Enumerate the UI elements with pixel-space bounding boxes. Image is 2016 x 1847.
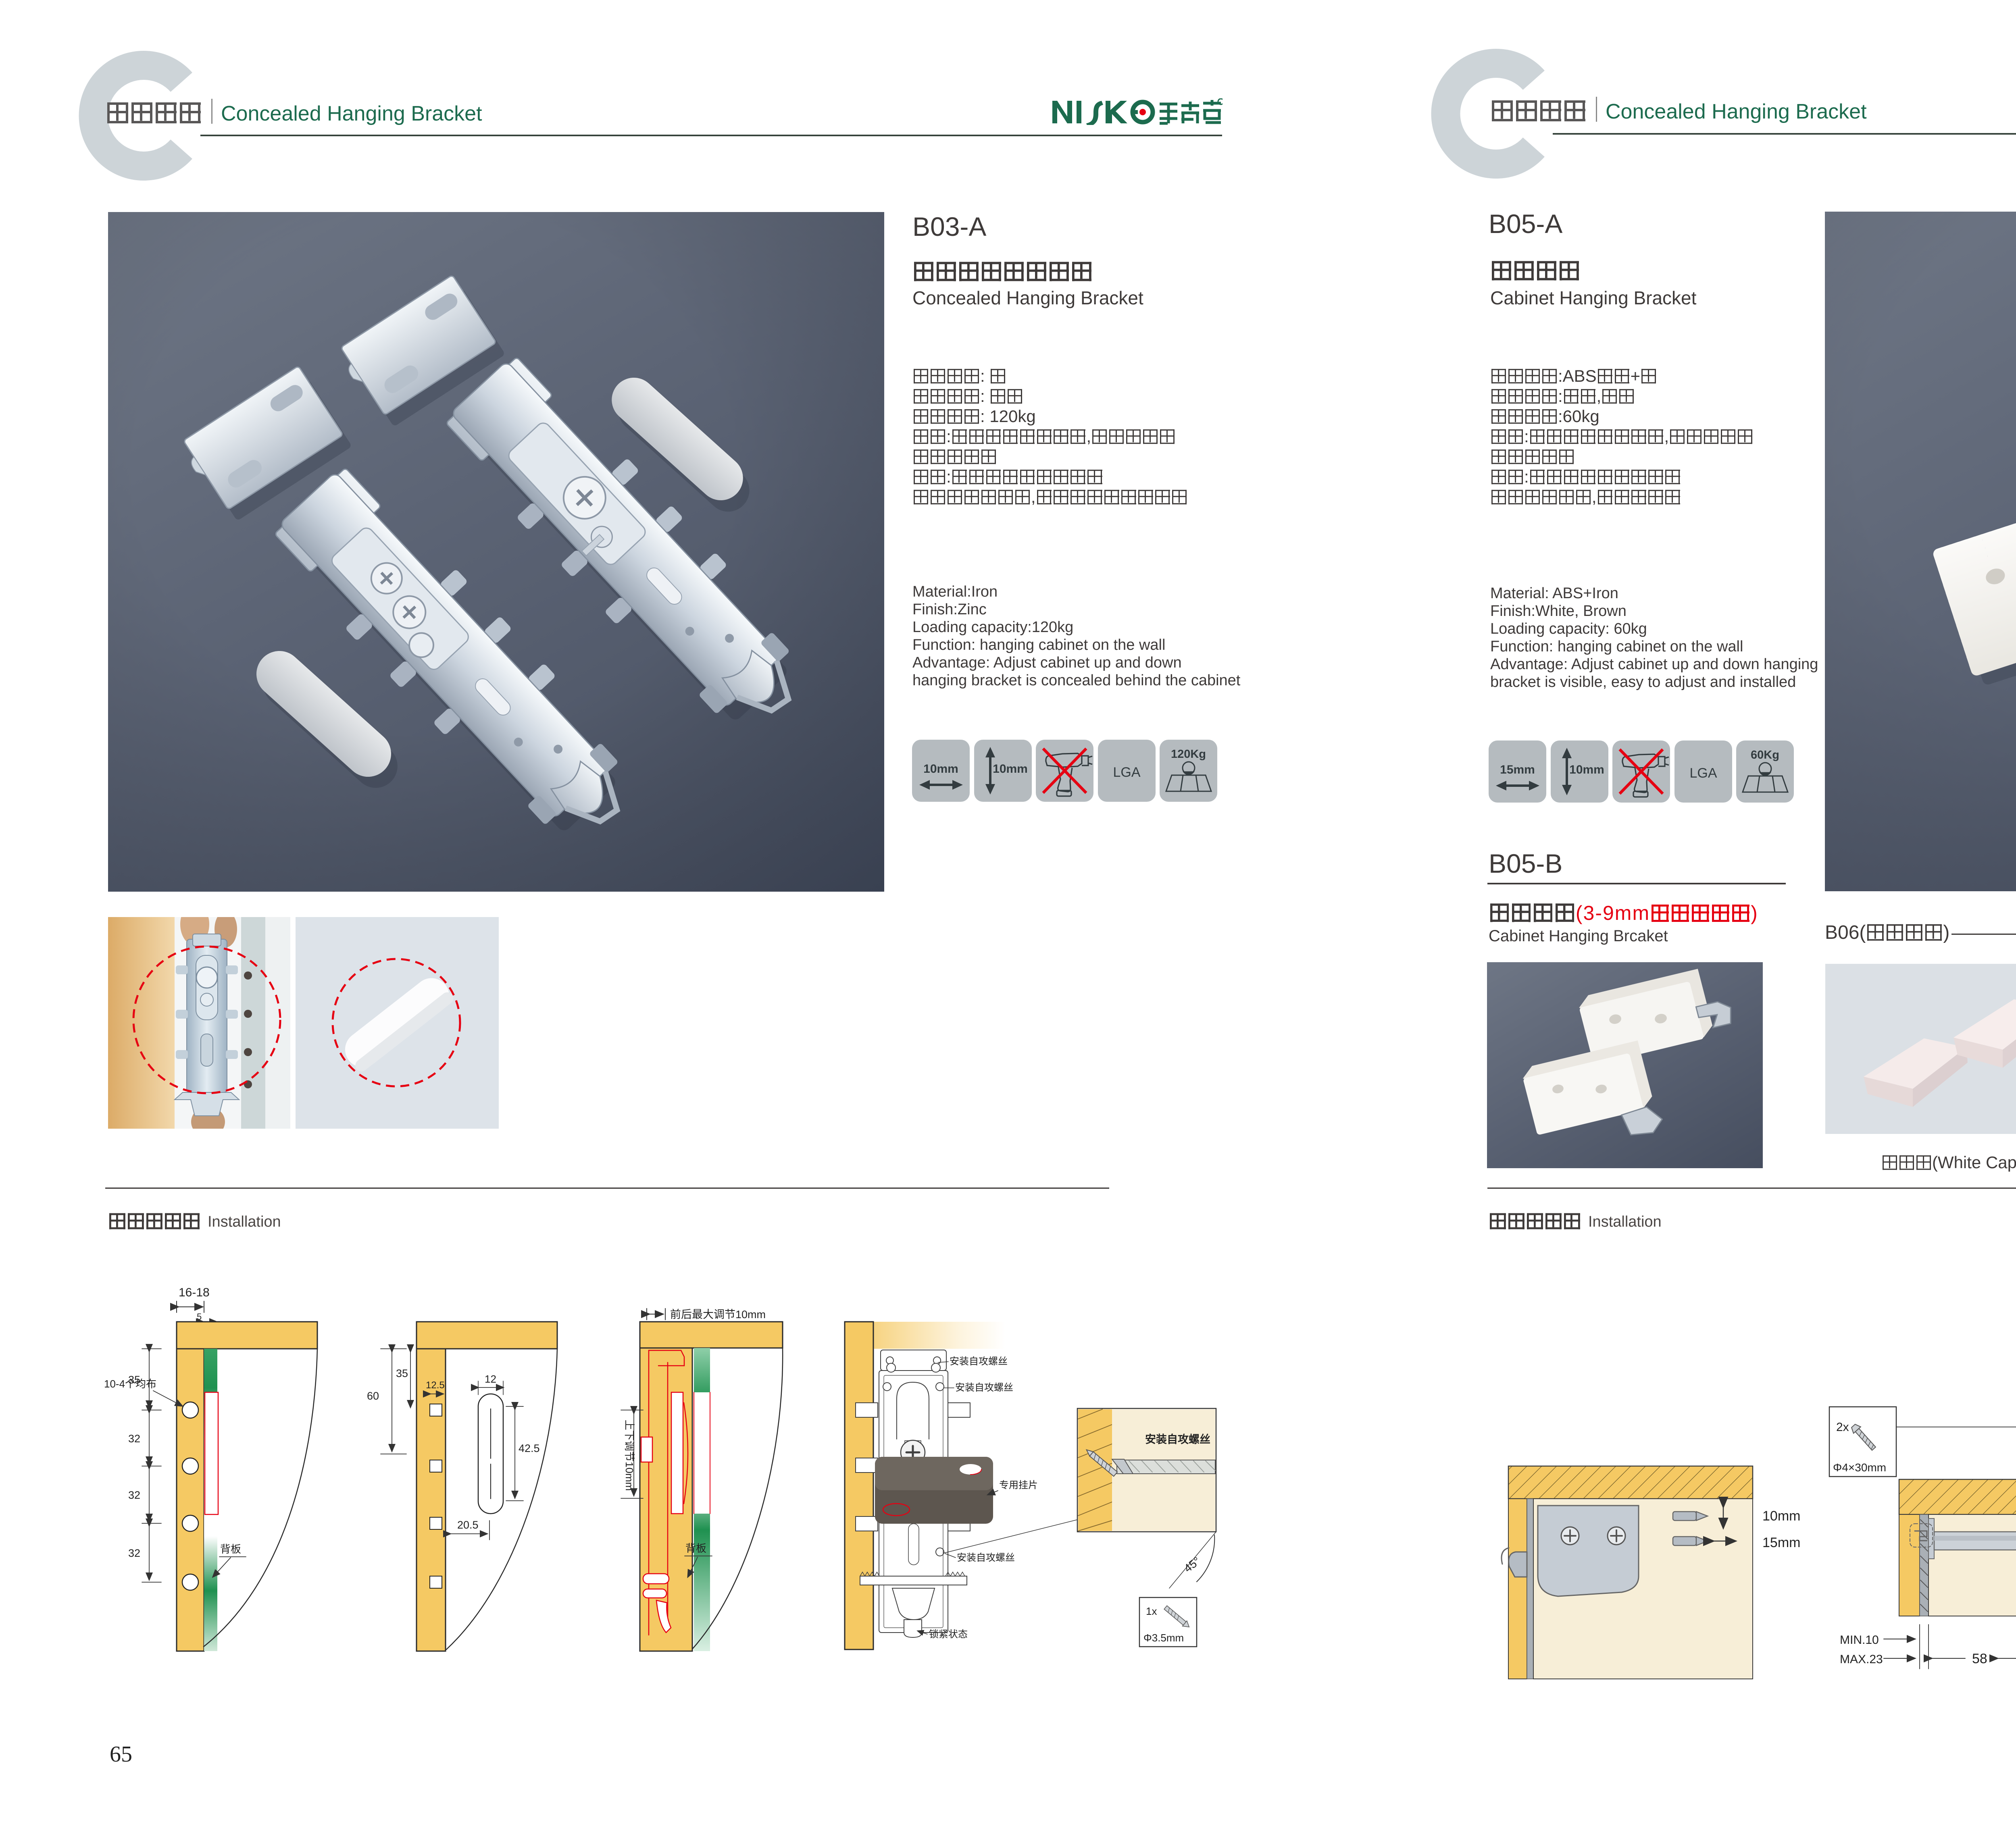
svg-text:45°: 45°	[1182, 1554, 1203, 1575]
svg-text:1x: 1x	[1146, 1605, 1157, 1617]
svg-text:前后最大调节10mm: 前后最大调节10mm	[670, 1308, 766, 1321]
svg-text:2x: 2x	[1836, 1421, 1849, 1434]
svg-text:背板: 背板	[685, 1542, 706, 1554]
svg-text:35: 35	[396, 1367, 408, 1379]
svg-text:58: 58	[1972, 1651, 1987, 1666]
svg-text:16-18: 16-18	[179, 1286, 210, 1299]
svg-text:上下调节10mm: 上下调节10mm	[623, 1420, 635, 1491]
svg-text:Φ3.5mm: Φ3.5mm	[1143, 1632, 1184, 1644]
svg-text:60: 60	[367, 1390, 379, 1402]
svg-text:背板: 背板	[220, 1543, 241, 1555]
svg-text:32: 32	[128, 1489, 140, 1501]
svg-text:10-4个均布: 10-4个均布	[104, 1378, 156, 1390]
svg-text:MIN.10: MIN.10	[1840, 1633, 1879, 1647]
svg-text:Φ4×30mm: Φ4×30mm	[1833, 1461, 1886, 1474]
svg-text:锁紧状态: 锁紧状态	[929, 1629, 968, 1640]
svg-text:15mm: 15mm	[1762, 1535, 1800, 1550]
svg-text:安装自攻螺丝: 安装自攻螺丝	[957, 1552, 1015, 1563]
svg-text:安装自攻螺丝: 安装自攻螺丝	[1145, 1433, 1210, 1446]
svg-text:20.5: 20.5	[457, 1519, 479, 1531]
svg-text:32: 32	[128, 1433, 140, 1445]
svg-text:5: 5	[197, 1312, 202, 1322]
svg-text:安装自攻螺丝: 安装自攻螺丝	[955, 1382, 1013, 1393]
svg-text:10mm: 10mm	[1762, 1508, 1800, 1524]
svg-text:12.5: 12.5	[426, 1380, 445, 1391]
svg-text:MAX.23: MAX.23	[1840, 1653, 1883, 1666]
svg-text:42.5: 42.5	[519, 1442, 540, 1454]
svg-text:专用挂片: 专用挂片	[999, 1480, 1038, 1491]
svg-text:32: 32	[128, 1547, 140, 1559]
svg-text:12: 12	[485, 1373, 496, 1385]
svg-text:安装自攻螺丝: 安装自攻螺丝	[950, 1356, 1008, 1367]
